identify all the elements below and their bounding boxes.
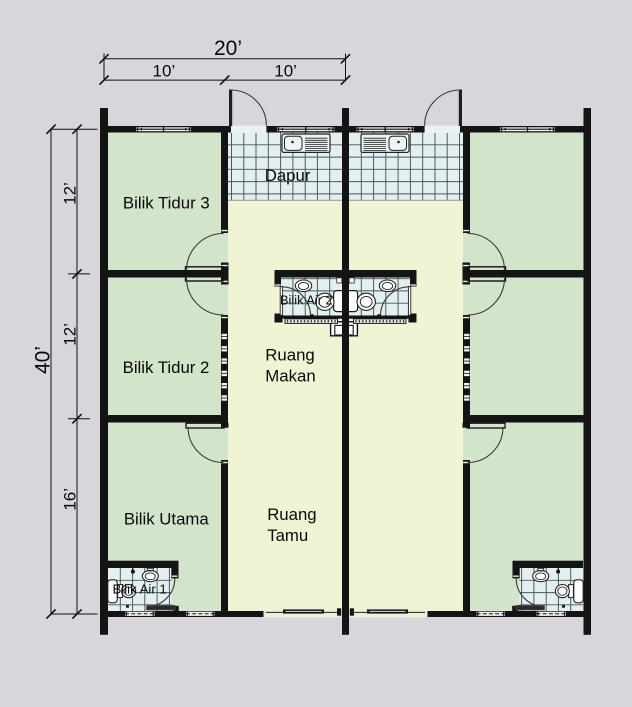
svg-text:Bilik Utama: Bilik Utama <box>124 510 210 529</box>
svg-text:40’: 40’ <box>32 346 55 374</box>
svg-text:10’: 10’ <box>153 61 176 80</box>
svg-text:Tamu: Tamu <box>267 526 308 545</box>
svg-text:Bilik Air 2: Bilik Air 2 <box>280 292 333 307</box>
svg-text:10’: 10’ <box>274 61 297 80</box>
svg-text:12’: 12’ <box>60 182 79 205</box>
svg-text:Ruang: Ruang <box>265 345 314 364</box>
svg-text:Makan: Makan <box>265 366 315 385</box>
svg-text:Dapur: Dapur <box>265 166 311 185</box>
svg-text:Bilik Tidur 2: Bilik Tidur 2 <box>123 358 210 377</box>
svg-text:20’: 20’ <box>214 37 242 60</box>
svg-text:12’: 12’ <box>60 323 79 346</box>
svg-text:16’: 16’ <box>60 488 79 511</box>
svg-text:Ruang: Ruang <box>267 505 316 524</box>
svg-text:Bilik Tidur 3: Bilik Tidur 3 <box>123 194 210 213</box>
svg-text:Bilik Air 1: Bilik Air 1 <box>113 582 167 597</box>
